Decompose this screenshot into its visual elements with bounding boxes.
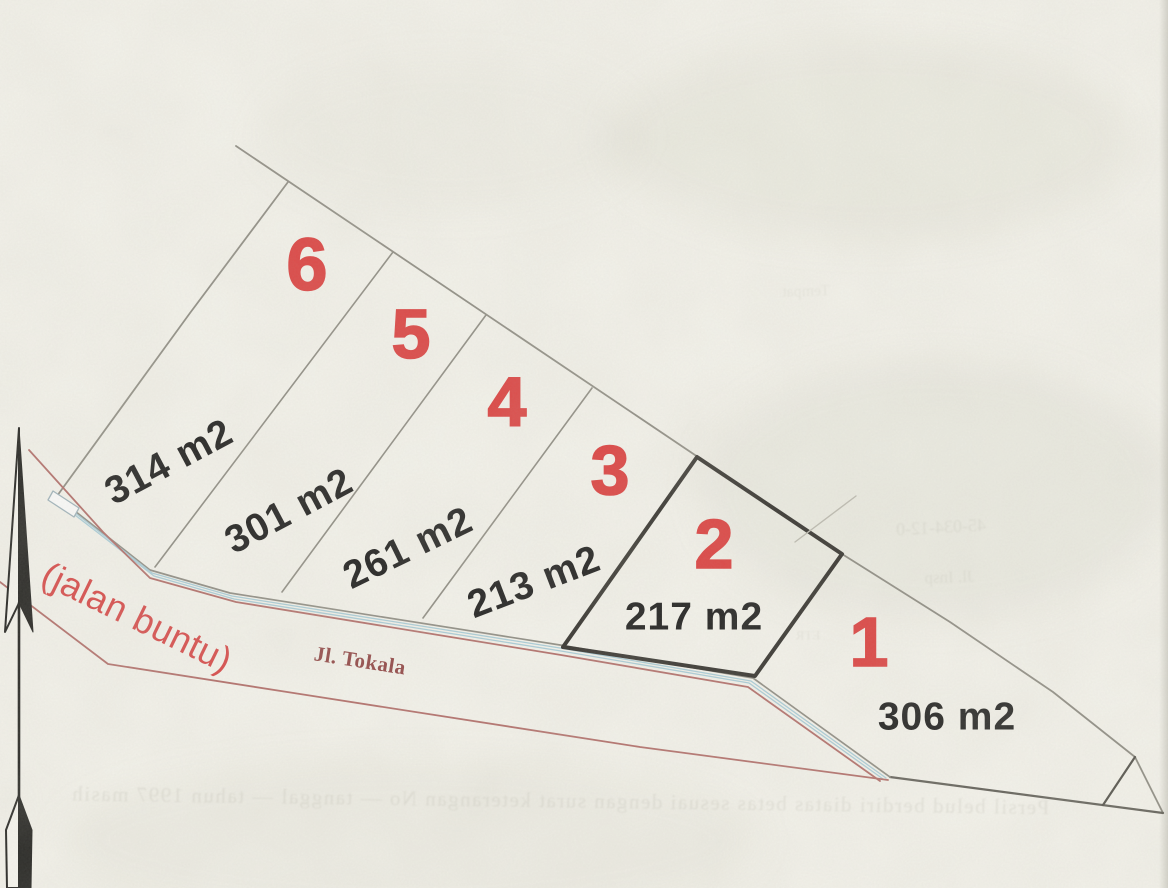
plot-1-number: 1 xyxy=(850,607,889,677)
plot-6-number: 6 xyxy=(286,228,327,302)
north-arrow-head-light xyxy=(5,428,19,632)
north-arrow-fletch-dark xyxy=(19,795,32,888)
plot-1-right-edge xyxy=(1103,757,1135,805)
parcel-bottom-boundary xyxy=(890,777,1163,813)
north-arrow-fletch-light xyxy=(6,795,19,888)
north-arrow-head-dark xyxy=(19,428,33,632)
scan-edge xyxy=(1159,0,1168,888)
plot-2-area-label: 217 m2 xyxy=(625,598,763,637)
culvert-symbol xyxy=(48,491,79,517)
plot-1-area-label: 306 m2 xyxy=(878,698,1016,737)
plot-3-number: 3 xyxy=(591,435,630,505)
pencil-scratch xyxy=(795,496,856,542)
north-arrow xyxy=(5,428,33,888)
scanned-plot-map: Persil belud berdiri diatas betas sesuai… xyxy=(0,0,1168,888)
plot-4-number: 4 xyxy=(488,367,527,437)
plot-5-number: 5 xyxy=(392,299,431,369)
plot-2-number: 2 xyxy=(695,509,734,579)
